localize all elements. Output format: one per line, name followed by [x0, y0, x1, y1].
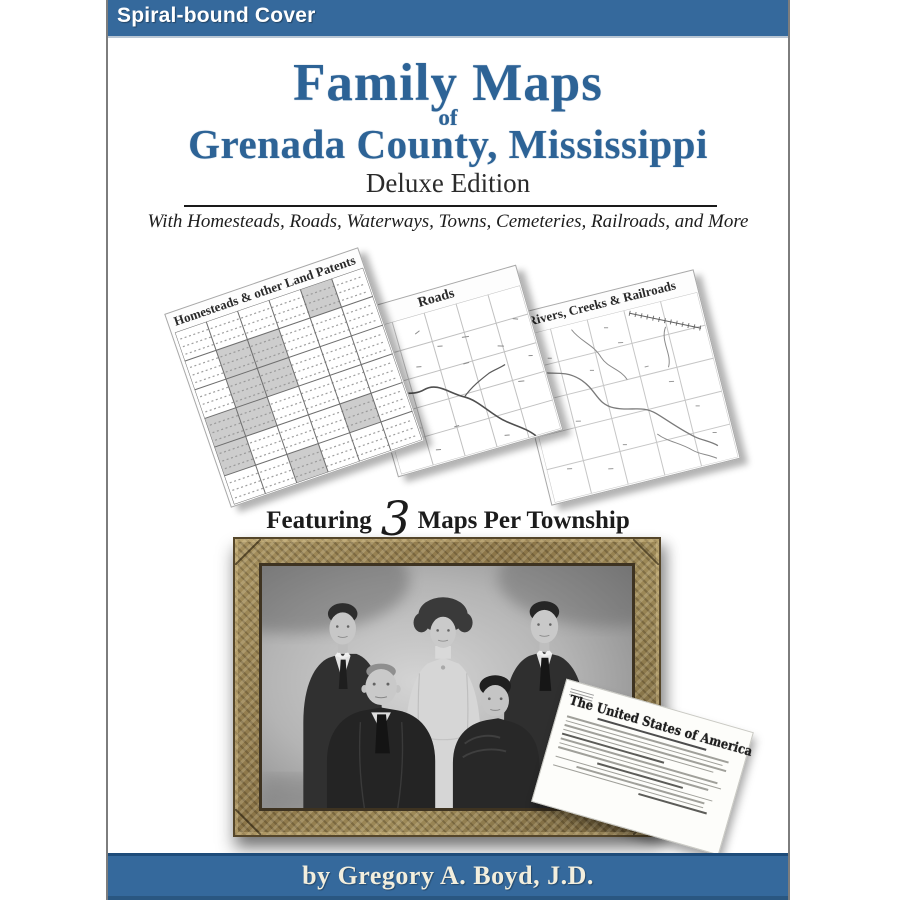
book-title: Family Maps of Grenada County, Mississip… — [108, 56, 788, 198]
title-line-2: Grenada County, Mississippi — [108, 124, 788, 164]
byline-bar: by Gregory A. Boyd, J.D. — [108, 853, 788, 900]
book-cover: Spiral-bound Cover Family Maps of Grenad… — [0, 0, 900, 900]
frame-corner-miter — [235, 539, 261, 565]
frame-corner-miter — [633, 539, 659, 565]
edition-label: Deluxe Edition — [108, 168, 788, 198]
byline-text: by Gregory A. Boyd, J.D. — [108, 856, 788, 896]
cover-type-banner: Spiral-bound Cover — [108, 0, 788, 38]
featuring-prefix: Featuring — [266, 507, 372, 534]
banner-label: Spiral-bound Cover — [117, 4, 315, 28]
divider-rule — [184, 205, 717, 207]
title-line-1: Family Maps — [108, 56, 788, 110]
featuring-suffix: Maps Per Township — [418, 507, 630, 534]
frame-corner-miter — [235, 809, 261, 835]
subtitle-line: With Homesteads, Roads, Waterways, Towns… — [108, 211, 788, 233]
